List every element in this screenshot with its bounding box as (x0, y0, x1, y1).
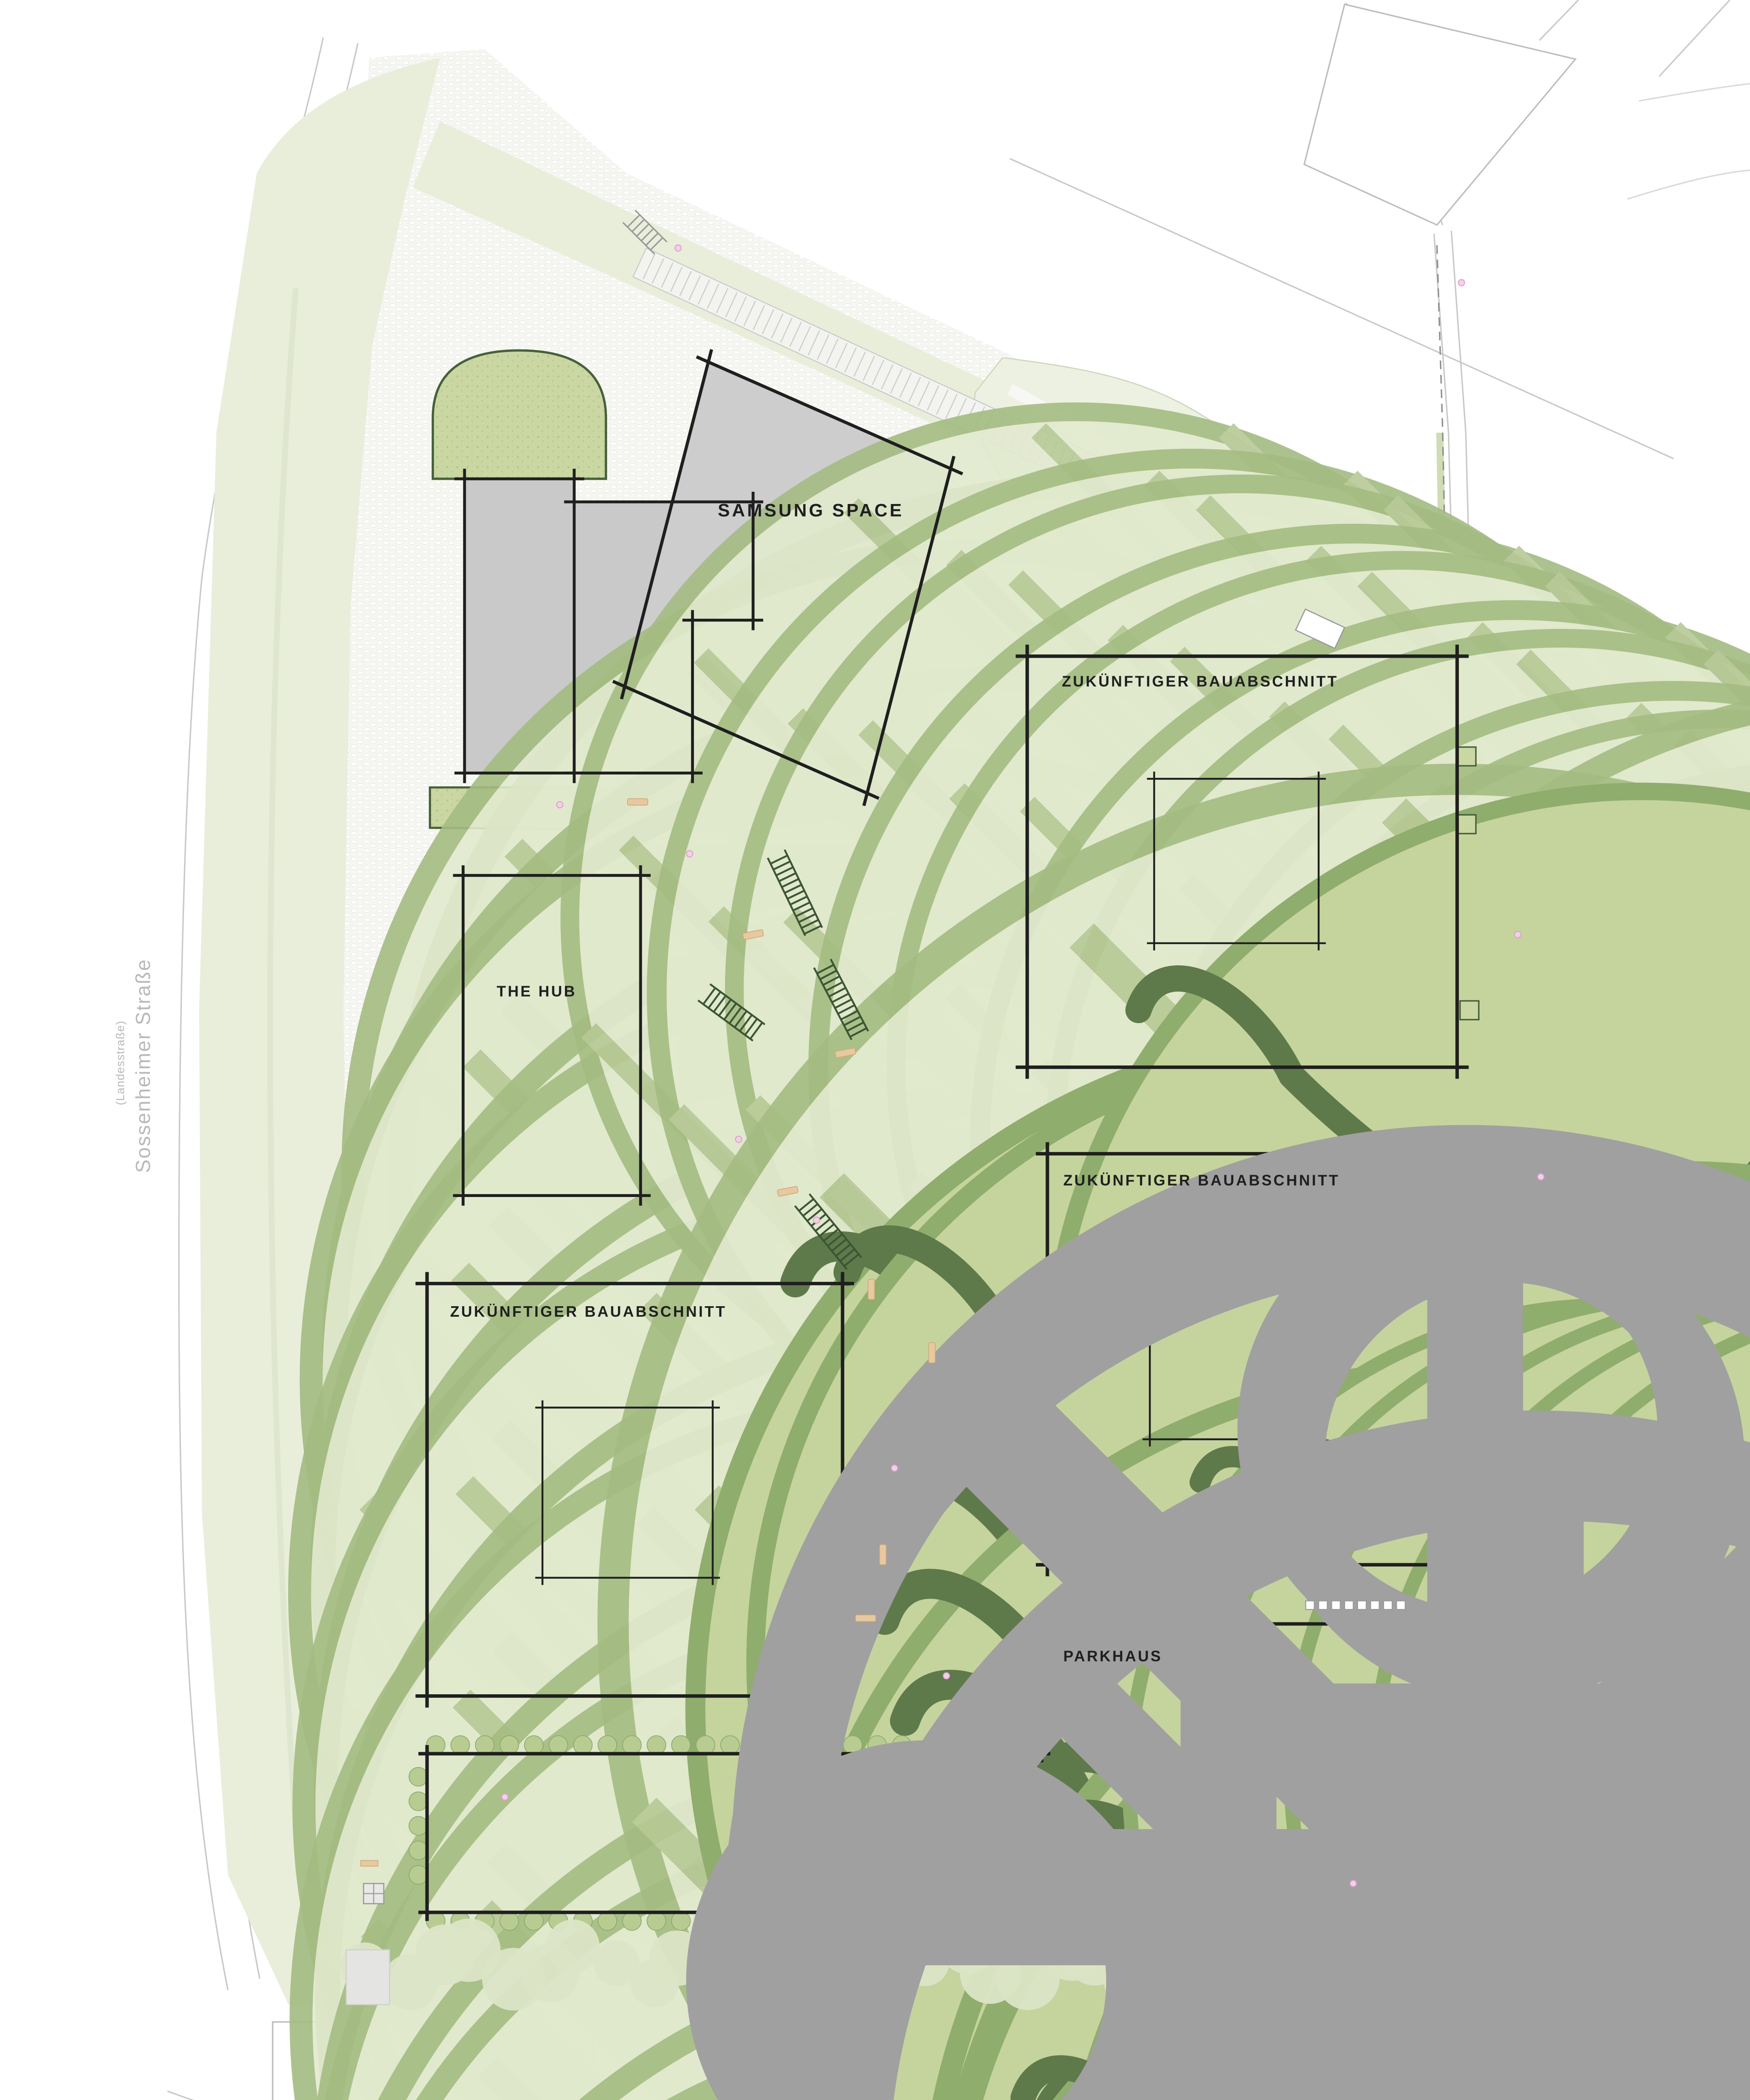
marker-dot-icon (736, 1136, 742, 1142)
shrub-icon (500, 1736, 519, 1755)
utility-pad (346, 1950, 389, 2004)
planter (1457, 815, 1476, 834)
marker-dot-icon (813, 1217, 820, 1223)
shrub-icon (721, 1736, 740, 1755)
planter (1457, 747, 1476, 766)
marker-dot-icon (1537, 1173, 1544, 1180)
rooflight-icon (1384, 1601, 1393, 1609)
bench (929, 1343, 935, 1363)
shrub-icon (409, 1866, 428, 1885)
label-ba-e: Zukünftiger Bauabschnitt (1063, 1172, 1340, 1189)
shrub-icon (696, 1736, 715, 1755)
shrub-icon (409, 1767, 428, 1786)
site-plan-page: Samsung Space The Hub Zukünftiger Bauabs… (0, 0, 1750, 2100)
marker-dot-icon (943, 1672, 949, 1679)
rooflight-icon (1319, 1601, 1327, 1609)
label-street-sossenheimer: Sossenheimer Straße (132, 958, 155, 1173)
shrub-icon (409, 1792, 428, 1811)
shrub-icon (672, 1911, 691, 1930)
shrub-icon (524, 1911, 543, 1930)
marker-dot-icon (891, 1465, 898, 1471)
shrub-icon (409, 1841, 428, 1860)
marker-dot-icon (502, 1794, 508, 1800)
shrub-icon (549, 1736, 568, 1755)
site-plan: Samsung Space The Hub Zukünftiger Bauabs… (0, 0, 1750, 2100)
shrub-icon (409, 1816, 428, 1835)
label-ba-sw: Zukünftiger Bauabschnitt (450, 1303, 727, 1320)
neighbour-building (1304, 4, 1576, 225)
rooflight-icon (1371, 1601, 1380, 1609)
marker-dot-icon (675, 245, 681, 251)
bench (868, 1279, 875, 1299)
marker-dot-icon (1514, 932, 1521, 938)
shrub-icon (647, 1736, 666, 1755)
shrub-icon (647, 1911, 666, 1930)
label-ba-ne: Zukünftiger Bauabschnitt (1062, 672, 1339, 690)
shrub-icon (623, 1736, 641, 1755)
shrub-icon (573, 1736, 592, 1755)
marker-dot-icon (1350, 1880, 1356, 1887)
rooflight-icon (1345, 1601, 1353, 1609)
shrub-icon (598, 1736, 617, 1755)
bench (880, 1545, 886, 1565)
label-parkhaus: Parkhaus (1063, 1648, 1162, 1665)
rooflight-icon (1358, 1601, 1366, 1609)
bench (628, 799, 648, 805)
label-the-hub: The Hub (497, 983, 577, 1000)
label-samsung-space: Samsung Space (718, 500, 904, 520)
label-street-sossenheimer-sub: (Landesstraße) (113, 1021, 126, 1105)
planter (1460, 1001, 1479, 1020)
green-mound (433, 350, 606, 479)
shrub-icon (524, 1736, 543, 1755)
rooflight-icon (1332, 1601, 1340, 1609)
road-topright-curves (1627, 84, 1750, 199)
shrub-icon (623, 1911, 641, 1930)
marker-dot-icon (1458, 279, 1465, 286)
shrub-icon (426, 1736, 445, 1755)
shrub-icon (451, 1736, 470, 1755)
shrub-icon (598, 1911, 617, 1930)
hedge-icon (547, 1919, 600, 1973)
shrub-icon (476, 1736, 494, 1755)
bench (856, 1615, 876, 1621)
rooflight-icon (1397, 1601, 1406, 1609)
shrub-icon (672, 1736, 691, 1755)
shrub-icon (500, 1911, 519, 1930)
marker-dot-icon (557, 801, 563, 808)
rooflight-icon (1306, 1601, 1314, 1609)
marker-dot-icon (686, 850, 693, 857)
bench (361, 1861, 378, 1866)
